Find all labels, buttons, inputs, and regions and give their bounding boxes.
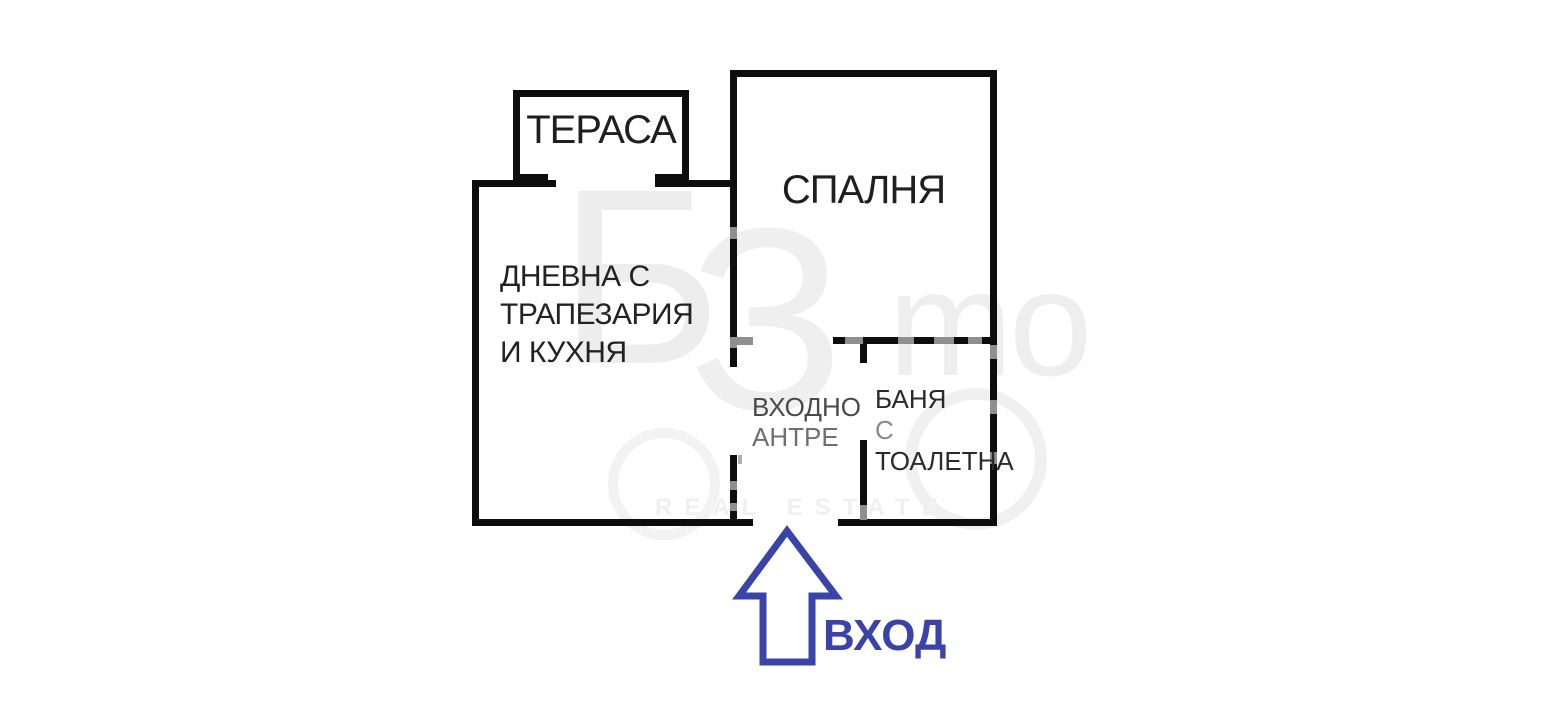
wall-patch [730,337,737,348]
room-label-living-line3: И КУХНЯ [500,334,693,372]
room-label-living: ДНЕВНА С ТРАПЕЗАРИЯ И КУХНЯ [500,258,693,372]
room-label-hallway: ВХОДНО АНТРЕ [752,392,861,452]
watermark-glyph-right: mo [888,248,1088,398]
room-label-living-line2: ТРАПЕЗАРИЯ [500,296,693,334]
wall-patch [860,505,867,520]
wall-living-left [472,180,479,526]
room-label-bathroom-line2: С [875,415,1014,446]
wall-patch [845,337,863,344]
wall-patch [730,227,737,239]
wall-living-top-left [472,180,556,187]
door-swing-mark [738,455,742,464]
wall-bedroom-bottom-stub [737,337,753,345]
wall-patch [990,345,997,359]
wall-bottom-bathroom [838,519,997,526]
wall-patch [730,481,737,490]
room-label-bathroom-line1: БАНЯ [875,384,1014,415]
wall-bedroom-top [730,70,997,77]
room-label-bathroom: БАНЯ С ТОАЛЕТНА [875,384,1014,477]
wall-living-top-right [655,180,737,187]
wall-patch [730,503,737,511]
wall-terrace-top [513,90,689,97]
floor-plan-canvas: Б З mo REAL ESTATE ТЕРАСА СПАЛНЯ ДНЕВНА … [0,0,1567,718]
room-label-hallway-line2: АНТРЕ [752,422,861,452]
room-label-living-line1: ДНЕВНА С [500,258,693,296]
wall-patch [968,337,982,344]
room-label-hallway-line1: ВХОДНО [752,392,861,422]
wall-bottom-living [472,519,753,526]
room-label-terrace: ТЕРАСА [513,108,689,153]
wall-bedroom-left [730,70,737,367]
wall-patch [898,337,914,344]
room-label-bedroom: СПАЛНЯ [737,168,990,213]
wall-bathroom-left-stub [860,344,867,363]
room-label-bathroom-line3: ТОАЛЕТНА [875,446,1014,477]
wall-patch [934,337,954,344]
entrance-label: ВХОД [823,611,946,661]
